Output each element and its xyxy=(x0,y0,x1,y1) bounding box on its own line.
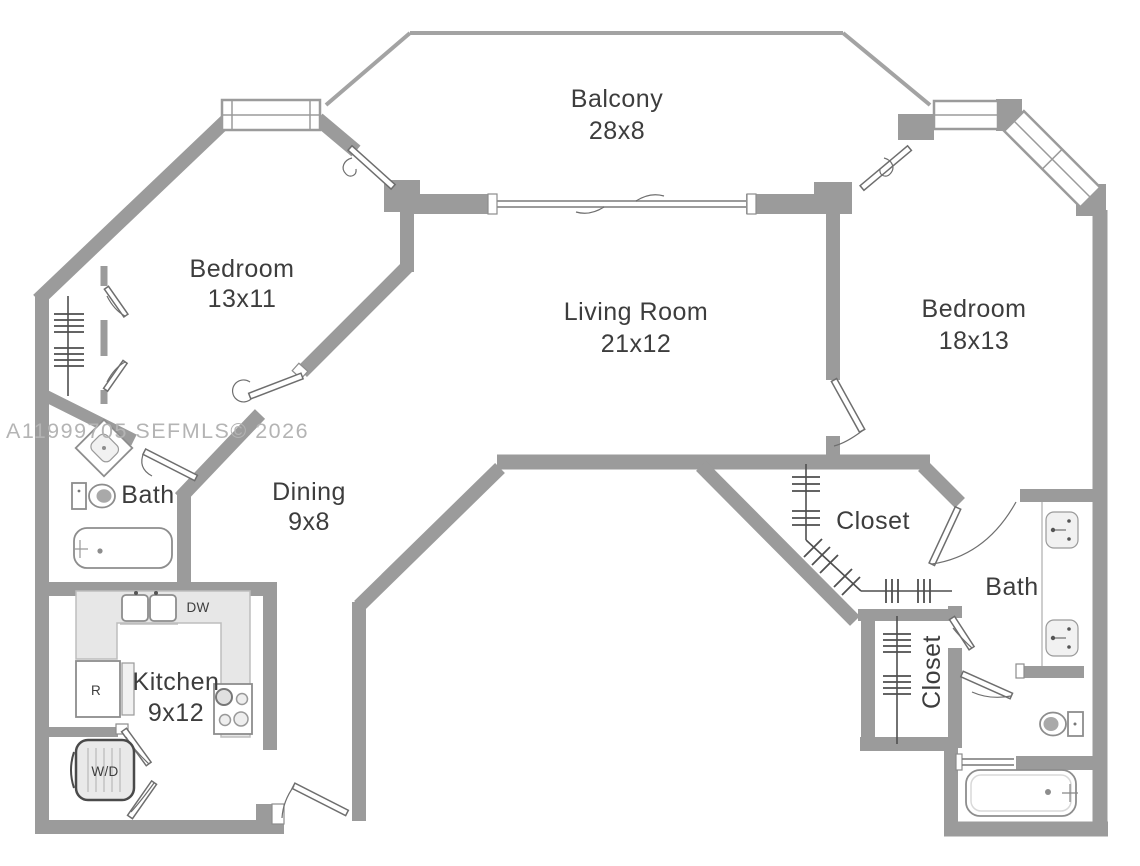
toilet-icon xyxy=(72,483,115,509)
room-dims-kitchen: 9x12 xyxy=(148,699,204,727)
room-label-living: Living Room xyxy=(564,298,708,326)
room-label-bath2: Bath xyxy=(985,573,1038,601)
sliding-door xyxy=(343,146,395,189)
toilet-icon xyxy=(1040,712,1083,736)
room-label-kitchen: Kitchen xyxy=(133,668,220,696)
room-label-balcony: Balcony xyxy=(571,85,663,113)
room-label-dining: Dining xyxy=(272,478,346,506)
sink-icon xyxy=(1046,620,1078,656)
refrigerator-icon xyxy=(76,661,134,717)
room-dims-bedroom1: 13x11 xyxy=(208,285,277,313)
room-dims-dining: 9x8 xyxy=(288,508,330,536)
sink-icon xyxy=(1046,512,1078,548)
door-swing xyxy=(949,616,974,649)
bathtub-icon xyxy=(966,770,1078,816)
floor-plan: Balcony 28x8 Bedroom 13x11 Living Room 2… xyxy=(0,0,1140,866)
floor-plan-canvas: Balcony 28x8 Bedroom 13x11 Living Room 2… xyxy=(0,0,1140,866)
door-swing xyxy=(961,664,1024,699)
sliding-door xyxy=(860,146,911,190)
window xyxy=(222,100,320,130)
room-label-closet1: Closet xyxy=(836,507,910,535)
door-swing xyxy=(142,449,198,481)
window xyxy=(1004,111,1100,207)
mls-watermark: A11999705 SEFMLS© 2026 xyxy=(6,419,309,443)
bathtub-icon xyxy=(73,528,172,568)
room-dims-living: 21x12 xyxy=(601,330,672,358)
stove-icon xyxy=(214,684,252,734)
appliance-label-dishwasher: DW xyxy=(186,600,209,615)
closet-rod-hall xyxy=(883,616,911,744)
entry-door xyxy=(272,783,348,824)
room-label-bedroom1: Bedroom xyxy=(190,255,295,283)
door-swing xyxy=(831,379,864,446)
closet-rod-bedroom1 xyxy=(54,296,84,396)
room-label-bedroom2: Bedroom xyxy=(922,295,1027,323)
appliance-label-refrigerator: R xyxy=(91,683,101,698)
sliding-door-main xyxy=(488,194,756,214)
door-swing xyxy=(233,363,308,402)
room-dims-balcony: 28x8 xyxy=(589,117,645,145)
appliance-label-washer-dryer: W/D xyxy=(91,764,118,779)
pocket-door xyxy=(956,754,1014,770)
room-label-bath1: Bath xyxy=(121,481,174,509)
window xyxy=(934,101,998,129)
room-label-closet2: Closet xyxy=(918,635,946,709)
room-dims-bedroom2: 18x13 xyxy=(939,327,1010,355)
door-swing xyxy=(929,502,1016,565)
